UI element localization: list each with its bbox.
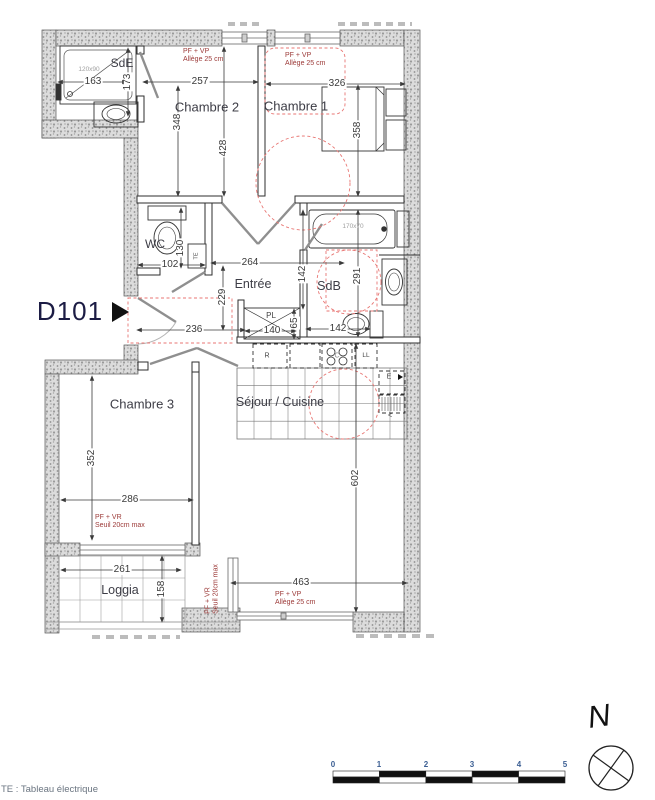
scale-bar	[333, 771, 565, 783]
door-entrance-leaf	[138, 298, 176, 322]
dim-loggia-width: 261	[113, 565, 132, 575]
dim-wc-width: 102	[161, 260, 180, 270]
electrical-panel-label: TE	[194, 252, 200, 259]
room-label-sejour-cuisine: Séjour / Cuisine	[236, 396, 324, 409]
room-label-chambre2: Chambre 2	[175, 101, 239, 114]
door-sdb	[305, 224, 322, 250]
scale-tick-0: 0	[331, 761, 335, 769]
red-annotations	[128, 48, 381, 439]
scale-tick-4: 4	[517, 761, 521, 769]
dim-sdb-height: 291	[353, 267, 363, 286]
room-label-chambre3: Chambre 3	[110, 398, 174, 411]
compass-icon	[589, 746, 633, 790]
washer-label: LL	[362, 353, 369, 360]
dim-chambre2-height: 348	[173, 113, 183, 132]
sink-arrow-label: <	[388, 413, 392, 420]
door-sejour	[197, 348, 238, 366]
room-label-entree: Entrée	[235, 278, 272, 291]
door-wc	[172, 272, 205, 292]
door-chambre1	[258, 203, 295, 244]
sink-label: E	[387, 374, 392, 381]
dim-closet-width: 140	[263, 326, 282, 336]
shower-size-label: 120x90	[78, 67, 99, 74]
exterior-walls	[42, 30, 420, 633]
room-label-loggia: Loggia	[101, 584, 139, 597]
annotation-window-chambre1: PF + VPAllège 25 cm	[285, 52, 325, 69]
washbasin-sdb	[382, 259, 407, 305]
dim-entry-width: 236	[185, 325, 204, 335]
fridge-label: R	[264, 353, 269, 360]
dim-sejour-height: 602	[351, 469, 361, 488]
room-label-sdb: SdB	[317, 280, 341, 293]
dim-chambre2-width: 257	[191, 77, 210, 87]
bed	[322, 87, 406, 151]
toilet-sdb	[343, 311, 383, 338]
door-chambre2	[222, 203, 258, 244]
apartment-id: D101	[37, 298, 103, 324]
scale-tick-3: 3	[470, 761, 474, 769]
annotation-window-chambre3: PF + VRSeuil 20cm max	[95, 514, 145, 531]
annotation-window-sejour: PF + VPAllège 25 cm	[275, 591, 315, 608]
bath-size-label: 170x70	[342, 224, 363, 231]
dim-chambre1-width: 326	[328, 79, 347, 89]
door-chambre3	[150, 348, 197, 364]
scale-tick-5: 5	[563, 761, 567, 769]
dim-sde-height: 173	[123, 73, 133, 92]
dim-sde-width: 163	[84, 77, 103, 87]
door-sde	[140, 52, 158, 98]
closet-label: PL	[266, 312, 276, 320]
dim-hall-width: 264	[241, 258, 260, 268]
dim-chambre2-total-height: 428	[219, 139, 229, 158]
floor-plan-drawing	[0, 0, 655, 800]
door-entrance-arc	[138, 322, 176, 344]
dim-chambre1-height: 358	[353, 121, 363, 140]
dim-sejour-window: 463	[292, 578, 311, 588]
annotation-window-loggia: PF + VRSeuil 20cm max	[205, 564, 222, 614]
dim-closet-depth: 65	[290, 316, 300, 329]
scale-tick-2: 2	[424, 761, 428, 769]
room-label-wc: WC	[145, 238, 165, 250]
dim-sdb-wc-width: 142	[329, 324, 348, 334]
north-label: N	[586, 699, 612, 733]
sink-arrow	[398, 374, 403, 380]
dim-chambre3-height: 352	[87, 449, 97, 468]
dim-wc-height: 130	[176, 239, 186, 258]
room-label-sde: SdE	[111, 57, 134, 69]
dim-chambre3-width: 286	[121, 495, 140, 505]
dim-loggia-depth: 158	[157, 580, 167, 599]
dim-hall-sdb: 142	[298, 265, 308, 284]
scale-tick-1: 1	[377, 761, 381, 769]
sink-drainer	[382, 397, 400, 411]
dim-hall-height: 229	[218, 288, 228, 307]
annotation-window-chambre2: PF + VPAllège 25 cm	[183, 48, 223, 65]
cooktop-label: C	[334, 353, 339, 360]
room-label-chambre1: Chambre 1	[264, 100, 328, 113]
entry-arrow	[112, 302, 129, 322]
legend-te: TE : Tableau électrique	[1, 784, 98, 795]
floor-plan-page: SdE Chambre 2 Chambre 1 WC Entrée SdB Ch…	[0, 0, 655, 800]
